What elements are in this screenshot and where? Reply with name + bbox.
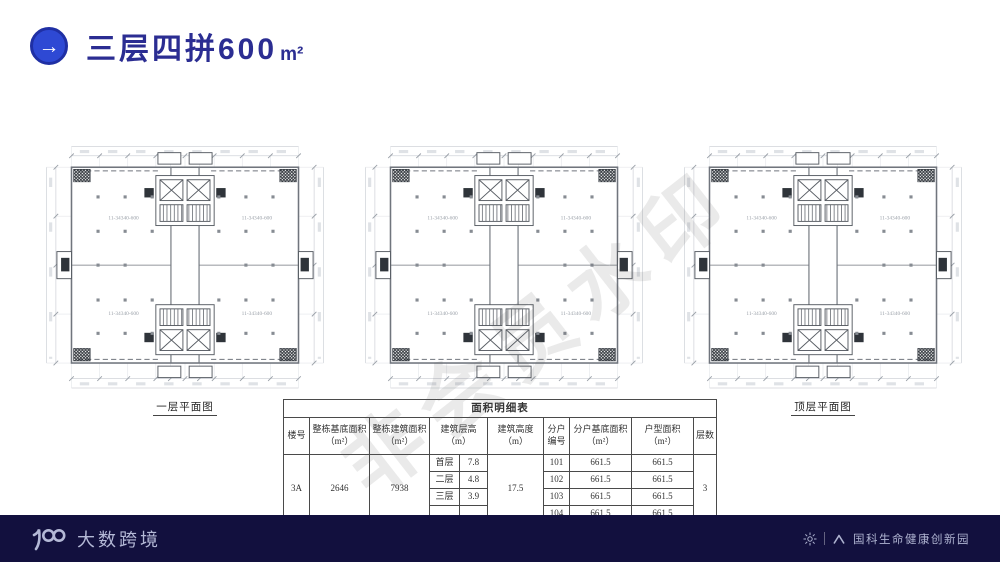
- page-title-unit: m²: [280, 44, 303, 68]
- cell-storey-label-1: 首层: [430, 455, 460, 472]
- svg-text:11-34340-600: 11-34340-600: [108, 215, 139, 221]
- cell-unit-area-102: 661.5: [632, 472, 694, 489]
- cell-base-area: 2646: [310, 455, 370, 523]
- cell-unit-no-102: 102: [544, 472, 570, 489]
- cell-unit-no-101: 101: [544, 455, 570, 472]
- cell-storey-label-2: 二层: [430, 472, 460, 489]
- svg-text:11-34340-600: 11-34340-600: [880, 215, 911, 221]
- col-header-gross-floor-area: 整栋建筑面积（m²）: [370, 418, 430, 455]
- cell-unit-base-101: 661.5: [570, 455, 632, 472]
- cell-unit-base-102: 661.5: [570, 472, 632, 489]
- header: → 三层四拼600 m²: [30, 24, 303, 68]
- table-row: 3A 2646 7938 首层 7.8 17.5 101 661.5 661.5…: [284, 455, 717, 472]
- park-brand: 国科生命健康创新园: [803, 531, 970, 547]
- col-header-unit-area: 户型面积（m²）: [632, 418, 694, 455]
- plan-caption: 一层平面图: [153, 399, 217, 416]
- col-header-storey-height: 建筑层高（m）: [430, 418, 488, 455]
- floor-plan-2: 11-34340-600 11-34340-600 11-34340-600 1…: [353, 136, 655, 416]
- slide: → 三层四拼600 m²: [0, 0, 1000, 562]
- svg-text:11-34340-600: 11-34340-600: [427, 215, 458, 221]
- floorplan-drawing: 11-34340-600 11-34340-600 11-34340-600 1…: [353, 136, 655, 398]
- svg-text:11-34340-600: 11-34340-600: [561, 215, 592, 221]
- col-header-unit-base-area: 分户基底面积（m²）: [570, 418, 632, 455]
- svg-text:11-34340-600: 11-34340-600: [746, 215, 777, 221]
- col-header-floors: 层数: [694, 418, 717, 455]
- arrow-icon: →: [30, 27, 68, 65]
- cell-storey-height-2: 4.8: [460, 472, 488, 489]
- cell-storey-height-3: 3.9: [460, 489, 488, 506]
- cell-building-no: 3A: [284, 455, 310, 523]
- park-name: 国科生命健康创新园: [853, 531, 970, 547]
- cell-building-height: 17.5: [488, 455, 544, 523]
- cell-floors: 3: [694, 455, 717, 523]
- svg-text:11-34340-600: 11-34340-600: [108, 311, 139, 317]
- cell-storey-label-3: 三层: [430, 489, 460, 506]
- cell-unit-no-103: 103: [544, 489, 570, 506]
- brand-name: 大数跨境: [77, 526, 161, 552]
- page-title: 三层四拼600 m²: [86, 24, 303, 68]
- floorplan-drawing: 11-34340-600 11-34340-600 11-34340-600 1…: [34, 136, 336, 398]
- table-title: 面积明细表: [284, 400, 717, 418]
- floor-plan-1: 11-34340-600 11-34340-600 11-34340-600 1…: [34, 136, 336, 416]
- area-table: 面积明细表 楼号 整栋基底面积（m²） 整栋建筑面积（m²） 建筑层高（m） 建…: [283, 399, 717, 523]
- col-header-unit-no: 分户编号: [544, 418, 570, 455]
- col-header-building-height: 建筑高度（m）: [488, 418, 544, 455]
- cell-unit-area-103: 661.5: [632, 489, 694, 506]
- svg-text:11-34340-600: 11-34340-600: [242, 215, 273, 221]
- svg-text:11-34340-600: 11-34340-600: [427, 311, 458, 317]
- cell-storey-height-1: 7.8: [460, 455, 488, 472]
- col-header-building-no: 楼号: [284, 418, 310, 455]
- floor-plans-row: 11-34340-600 11-34340-600 11-34340-600 1…: [34, 136, 974, 416]
- footer-icon-divider: [824, 532, 825, 545]
- floor-plan-3: 11-34340-600 11-34340-600 11-34340-600 1…: [672, 136, 974, 416]
- svg-text:11-34340-600: 11-34340-600: [880, 311, 911, 317]
- dashu-logo-icon: [30, 526, 68, 552]
- svg-text:11-34340-600: 11-34340-600: [746, 311, 777, 317]
- mountain-icon: [832, 532, 846, 546]
- brand: 大数跨境: [30, 526, 161, 552]
- cell-gross-floor-area: 7938: [370, 455, 430, 523]
- cell-unit-base-103: 661.5: [570, 489, 632, 506]
- svg-text:11-34340-600: 11-34340-600: [242, 311, 273, 317]
- plan-caption: 顶层平面图: [791, 399, 855, 416]
- col-header-base-area: 整栋基底面积（m²）: [310, 418, 370, 455]
- page-title-text: 三层四拼600: [86, 24, 277, 68]
- svg-text:11-34340-600: 11-34340-600: [561, 311, 592, 317]
- cell-unit-area-101: 661.5: [632, 455, 694, 472]
- gear-icon: [803, 532, 817, 546]
- footer: 大数跨境 国科生命健康创新园: [0, 515, 1000, 562]
- floorplan-drawing: 11-34340-600 11-34340-600 11-34340-600 1…: [672, 136, 974, 398]
